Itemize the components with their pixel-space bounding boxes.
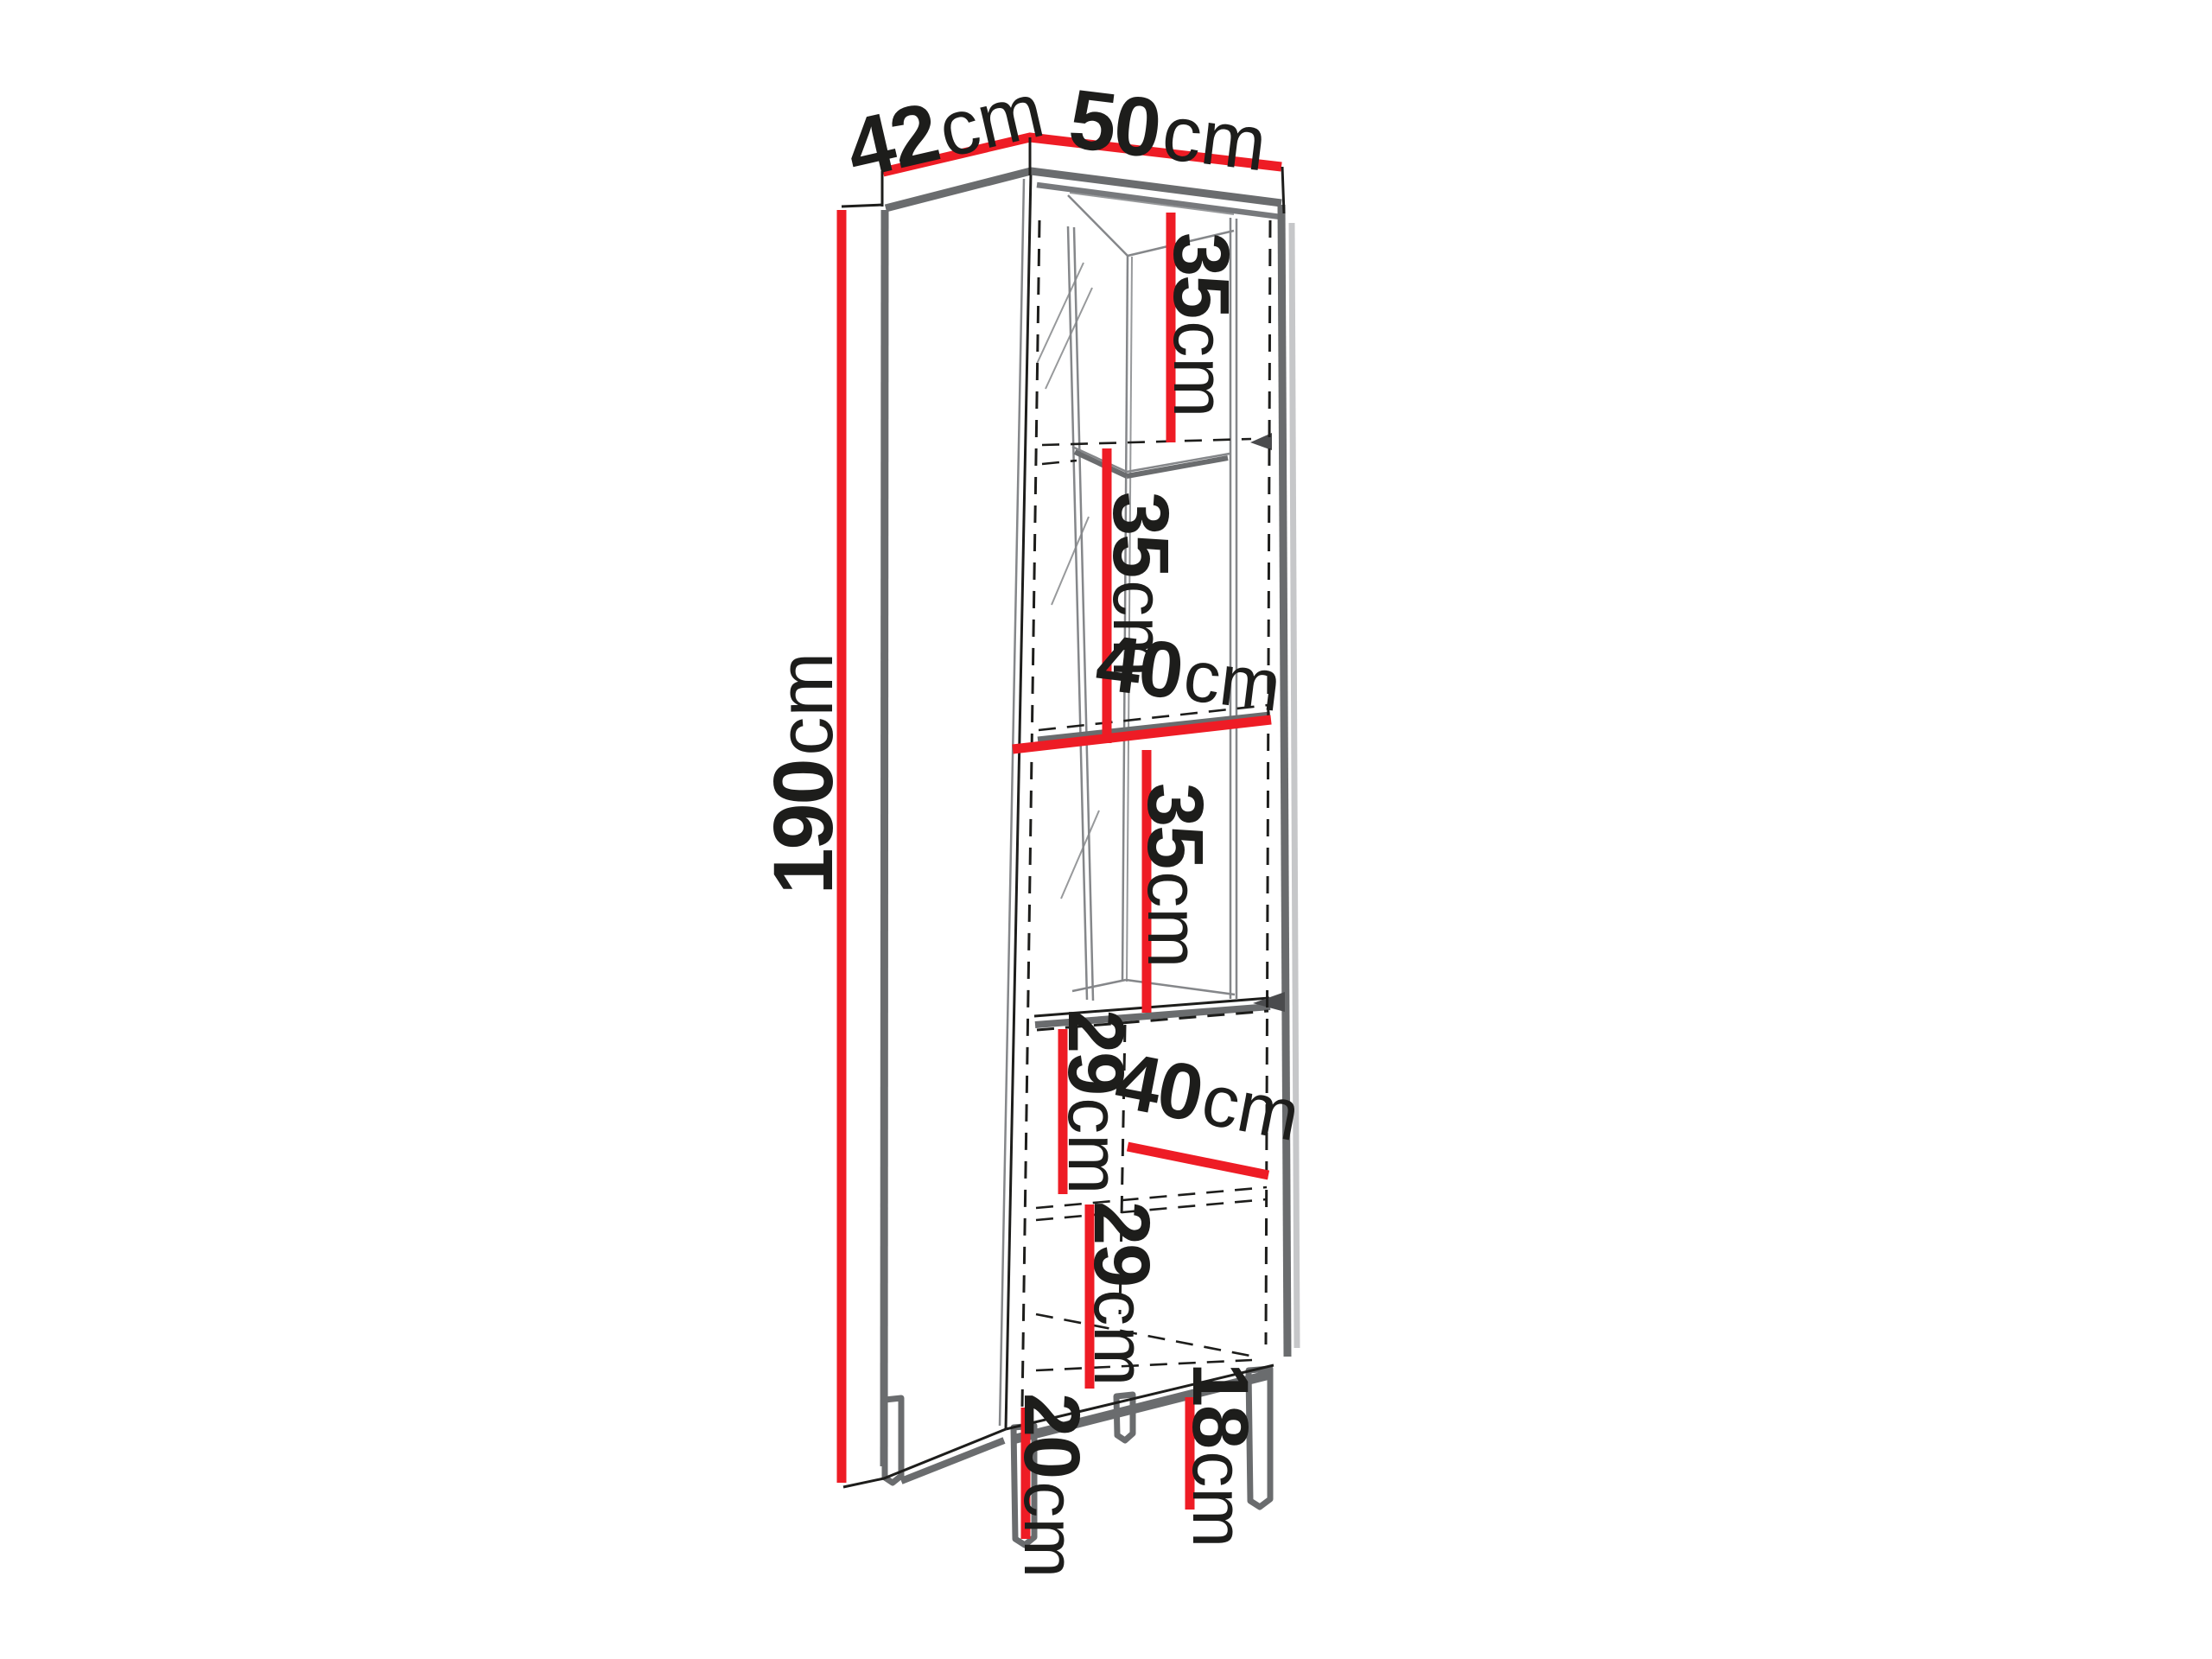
diagram-canvas: 42cm 50cm 190cm 35cm 35cm 40cm 35cm 29cm… <box>0 0 2212 1659</box>
dim-height-label: 190cm <box>756 652 850 895</box>
dim-shelf-lower-mid-label: 35cm <box>1131 783 1219 968</box>
furniture-dimension-diagram: 42cm 50cm 190cm 35cm 35cm 40cm 35cm 29cm… <box>0 0 2212 1659</box>
dim-shelf-top-label: 35cm <box>1157 232 1245 417</box>
dim-width-label: 50cm <box>1065 71 1272 188</box>
dim-lower-section-bottom-label: 29cm <box>1077 1201 1166 1386</box>
dim-front-leg-label: 20cm <box>1007 1393 1096 1578</box>
dim-side-leg-label: 18cm <box>1176 1363 1264 1548</box>
